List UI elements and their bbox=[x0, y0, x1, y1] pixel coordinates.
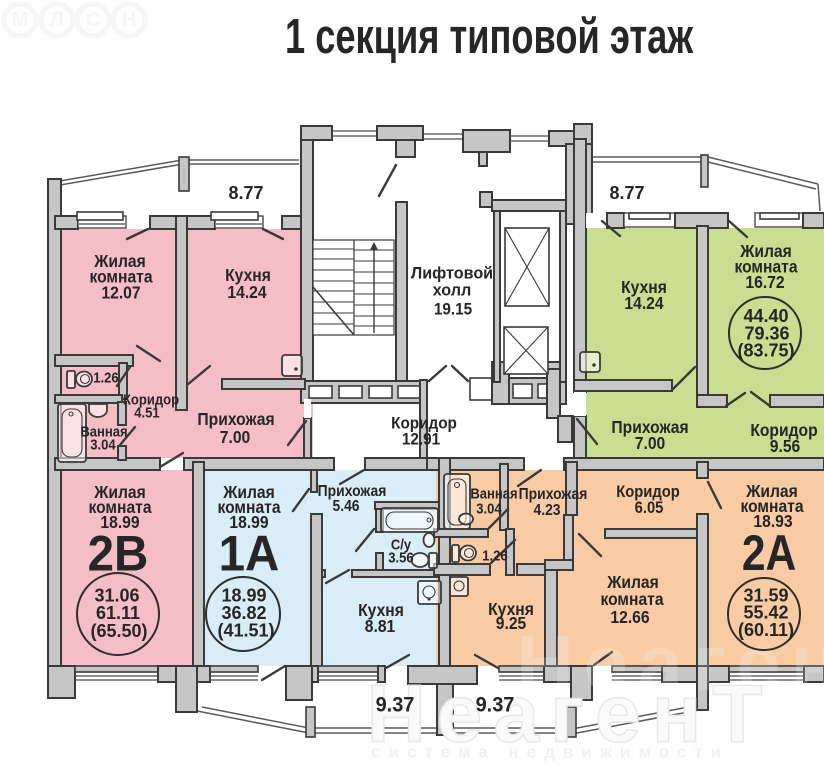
svg-text:14.24: 14.24 bbox=[624, 293, 664, 313]
svg-text:61.11: 61.11 bbox=[96, 603, 140, 623]
svg-text:9.37: 9.37 bbox=[376, 693, 415, 717]
svg-text:1А: 1А bbox=[219, 526, 280, 581]
svg-text:1.26: 1.26 bbox=[482, 546, 508, 563]
svg-text:16.72: 16.72 bbox=[745, 272, 784, 292]
svg-text:9.56: 9.56 bbox=[770, 436, 800, 456]
svg-text:холл: холл bbox=[433, 280, 472, 299]
svg-text:3.04: 3.04 bbox=[476, 499, 502, 516]
svg-text:1.26: 1.26 bbox=[93, 368, 119, 385]
svg-text:Л: Л bbox=[50, 9, 64, 31]
svg-text:4.51: 4.51 bbox=[134, 403, 160, 420]
svg-text:7.00: 7.00 bbox=[635, 433, 665, 453]
svg-text:М: М bbox=[12, 9, 29, 31]
svg-text:1 секция типовой этаж: 1 секция типовой этаж bbox=[285, 10, 693, 65]
svg-text:8.77: 8.77 bbox=[228, 183, 263, 203]
svg-text:9.25: 9.25 bbox=[496, 613, 526, 633]
svg-text:3.04: 3.04 bbox=[90, 435, 116, 452]
svg-text:8.77: 8.77 bbox=[609, 183, 644, 203]
svg-text:12.07: 12.07 bbox=[101, 282, 140, 302]
svg-text:12.91: 12.91 bbox=[402, 430, 440, 449]
svg-text:19.15: 19.15 bbox=[434, 300, 472, 319]
svg-text:(83.75): (83.75) bbox=[737, 341, 794, 361]
svg-text:4.23: 4.23 bbox=[533, 501, 560, 519]
svg-text:Н: Н bbox=[122, 9, 136, 31]
svg-text:С: С bbox=[86, 9, 100, 31]
svg-text:8.81: 8.81 bbox=[365, 616, 395, 636]
svg-text:(65.50): (65.50) bbox=[90, 621, 147, 641]
svg-text:14.24: 14.24 bbox=[227, 282, 267, 302]
svg-text:3.56: 3.56 bbox=[388, 548, 414, 565]
svg-text:система недвижимости: система недвижимости bbox=[371, 743, 729, 762]
svg-text:2А: 2А bbox=[742, 525, 796, 581]
svg-text:9.37: 9.37 bbox=[476, 693, 515, 717]
svg-text:(41.51): (41.51) bbox=[217, 621, 274, 641]
svg-text:5.46: 5.46 bbox=[332, 497, 359, 515]
svg-text:7.00: 7.00 bbox=[220, 427, 250, 447]
svg-text:6.05: 6.05 bbox=[635, 499, 664, 517]
svg-text:(60.11): (60.11) bbox=[738, 620, 794, 640]
svg-text:12.66: 12.66 bbox=[610, 607, 649, 627]
